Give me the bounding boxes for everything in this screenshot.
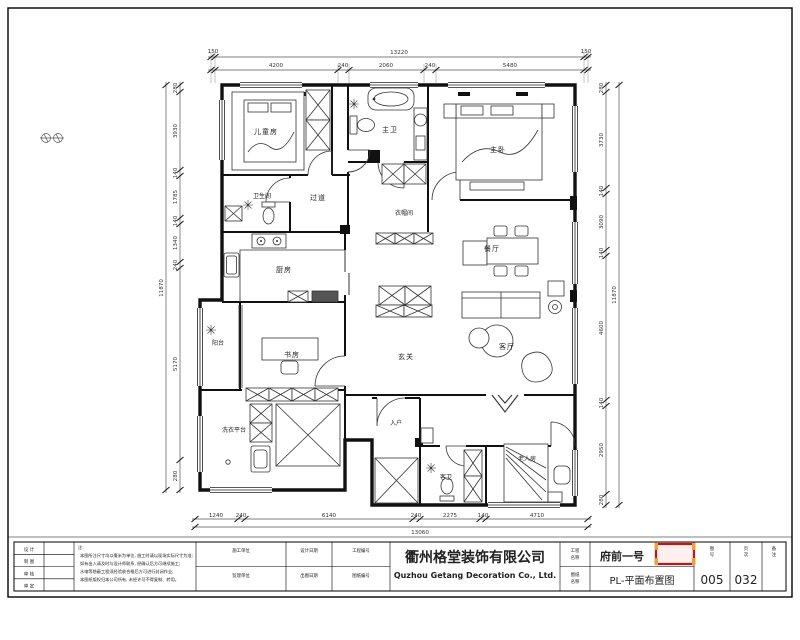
room-label-guest-bath: 卫生间 [253,192,271,200]
dim-bottom-seg: 140 [478,513,489,519]
dim-right-seg: 280 [599,494,605,505]
dim-left-seg: 240 [173,259,179,270]
mid-cell-label: 出图日期 [300,572,318,579]
notes-label: 注: [78,544,84,551]
room-label-hallway: 过道 [310,193,326,202]
dim-right-seg: 2950 [599,442,605,457]
room-label-living: 客厅 [499,342,515,351]
laundry-cabinet-symbol [226,404,272,472]
dim-left-seg: 140 [173,215,179,226]
dim-left-seg: 140 [173,167,179,178]
company-name-en: Quzhou Getang Decoration Co., Ltd. [394,571,556,580]
dimension-chain-bottom: 1240 240 6140 240 2275 140 4710 13060 [192,513,592,536]
sideboard-symbol [376,233,433,244]
room-label-second-bath: 客卫 [440,473,452,481]
toilet-symbol [350,116,375,134]
plant-icon [426,463,436,473]
dim-right-seg: 280 [599,82,605,93]
room-label-closet: 衣帽间 [395,209,413,217]
sheet-no-label: 号 [710,552,715,558]
dim-left-seg: 1340 [173,235,179,250]
mid-cell-label: 图纸编号 [352,572,370,579]
dimension-chain-top: 13220 150 150 4200 240 2060 240 5480 [208,49,592,83]
dim-bottom-seg: 2275 [443,513,458,519]
notes-line: 本图所注尺寸均以毫米为单位, 施工时请以现场实际尺寸为准; [80,552,193,559]
dim-right-seg: 3730 [599,132,605,147]
wardrobe-symbol [306,90,330,150]
dim-top-seg: 5480 [503,63,518,69]
dim-left-overall: 11870 [159,279,165,297]
dim-left-seg: 5170 [173,356,179,371]
sofa-symbol [462,281,564,382]
dim-bottom-seg: 6140 [322,513,337,519]
dim-left-seg: 280 [173,470,179,481]
dim-top-overall: 13220 [390,50,408,56]
dim-bottom-seg: 240 [236,513,247,519]
dim-right-seg: 3090 [599,214,605,229]
project-name: 府前一号 [600,549,644,563]
plant-icon [349,99,359,109]
room-label-foyer: 玄关 [398,352,414,361]
mid-cell-label: 设计日期 [300,547,318,554]
room-label-laundry: 洗衣平台 [222,426,246,434]
furniture [206,88,570,503]
mid-cell-label: 监理单位 [232,572,250,579]
sign-row-label: 审 核 [24,571,35,578]
room-label-dining: 餐厅 [484,244,500,253]
sign-row-label: 制 图 [24,558,35,565]
toilet-symbol [421,428,454,501]
notes-line: 水电等隐蔽工程须经验收合格后方可进行封闭作业; [80,568,174,575]
page-no-label: 页 [744,546,749,552]
selection-box[interactable] [655,543,696,565]
room-label-kitchen: 厨房 [276,265,292,274]
bathtub-symbol [368,88,414,110]
room-label-elder: 老人房 [518,455,536,463]
sheet-number: 005 [701,573,724,587]
drawing-label: 图纸 [571,571,580,578]
plant-icon [206,325,216,335]
dim-bottom-seg: 240 [411,513,422,519]
company-name-cn: 衢州格堂装饰有限公司 [405,549,545,566]
project-label: 名称 [571,554,580,561]
dim-right-seg: 140 [599,247,605,258]
cabinet-symbol [464,450,482,502]
mid-cell-label: 工程编号 [352,547,370,554]
selection-handle[interactable] [692,543,696,550]
cabinet-symbol [225,206,242,221]
wardrobe-symbol [246,388,338,401]
closet-cabinet-symbol [382,164,426,184]
selection-handle[interactable] [692,558,696,565]
dim-top-end-left: 150 [208,49,219,55]
mid-cell-label: 施工单位 [232,547,250,554]
drawing-name: PL-平面布置图 [609,575,674,587]
section-markers [40,134,64,143]
dim-left-seg: 280 [173,82,179,93]
dim-right-seg: 4600 [599,320,605,335]
remark-label: 注 [772,551,777,558]
dim-bottom-overall: 13060 [411,530,429,536]
room-label-entry: 入户 [390,419,402,427]
dim-top-seg: 2060 [379,63,394,69]
dim-left-seg: 1785 [173,189,179,204]
dim-right-seg: 140 [599,397,605,408]
dim-top-end-right: 150 [581,49,592,55]
drawing-label: 名称 [571,578,580,585]
project-label: 工程 [571,547,580,554]
room-label-balcony: 阳台 [212,339,224,347]
dining-table-symbol [463,226,538,276]
shoe-cabinet-symbol [376,286,432,317]
sign-row-label: 设 计 [24,546,35,553]
notes-line: 本图纸版权归本公司所有, 未经许可不得复制、转用。 [80,576,179,583]
shaft-symbol [276,404,340,466]
dim-top-seg: 4200 [269,63,284,69]
page-no-label: 次 [744,551,749,558]
dimension-chain-left: 280 3930 140 1785 140 1340 240 5170 280 … [159,82,184,493]
remark-label: 备 [772,545,777,552]
plant-icon [243,200,253,210]
dim-top-seg: 240 [425,63,436,69]
selection-handle[interactable] [655,543,659,550]
dim-top-seg: 240 [338,63,349,69]
sign-row-label: 审 定 [24,583,35,590]
sink-symbol [414,108,427,160]
dim-right-overall: 11870 [612,286,618,304]
sheet-no-label: 图 [710,546,715,552]
room-label-master-bath: 主卫 [382,125,398,134]
dim-bottom-seg: 4710 [530,513,545,519]
page-number: 032 [735,573,758,587]
room-label-kids: 儿童房 [254,127,278,136]
dimension-chain-right: 280 3730 140 3090 140 4600 140 2950 280 … [599,82,623,508]
dim-right-seg: 140 [599,185,605,196]
selection-handle[interactable] [655,558,659,565]
elevator-symbol [375,458,418,503]
drawing-sheet: 13220 150 150 4200 240 2060 240 5480 124… [0,0,800,640]
room-label-master-bedroom: 主卧 [490,145,506,154]
bed-symbol [504,444,570,502]
room-label-study: 书房 [284,350,300,359]
notes-line: 如有出入请及时与设计师联系, 经确认后方可继续施工; [80,560,180,567]
dim-bottom-seg: 1240 [209,513,224,519]
dim-left-seg: 3930 [173,123,179,138]
toilet-symbol [262,202,275,224]
